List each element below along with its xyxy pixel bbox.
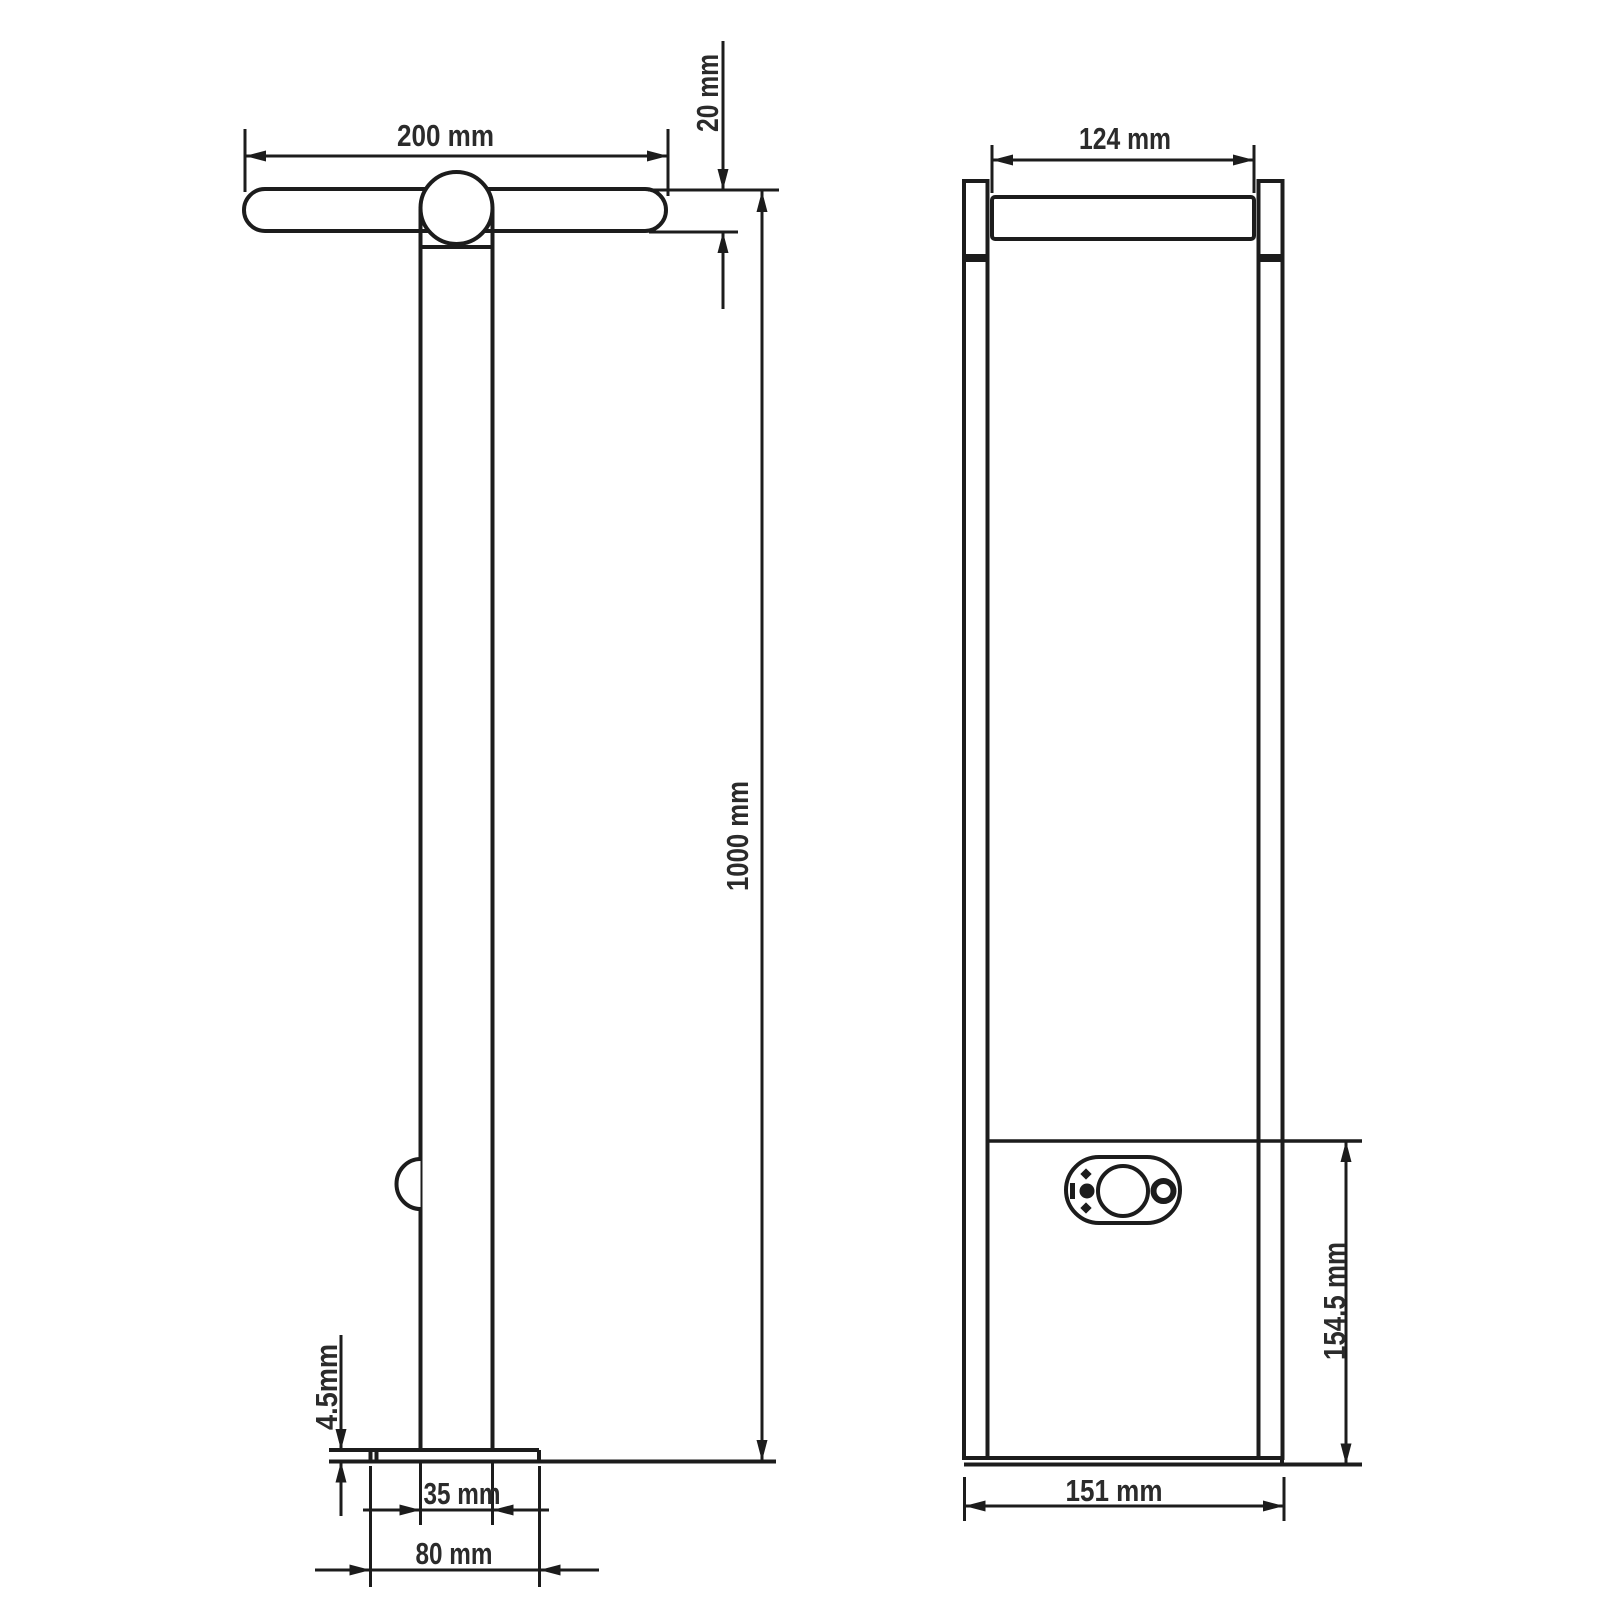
svg-text:124 mm: 124 mm (1079, 121, 1171, 156)
svg-text:20 mm: 20 mm (690, 54, 725, 132)
svg-text:4.5mm: 4.5mm (309, 1344, 344, 1430)
svg-text:200 mm: 200 mm (397, 118, 494, 153)
svg-text:1000 mm: 1000 mm (720, 781, 755, 891)
svg-text:35 mm: 35 mm (424, 1476, 501, 1511)
svg-text:80 mm: 80 mm (416, 1536, 493, 1571)
svg-text:154.5 mm: 154.5 mm (1317, 1242, 1352, 1360)
svg-text:151 mm: 151 mm (1066, 1473, 1163, 1508)
